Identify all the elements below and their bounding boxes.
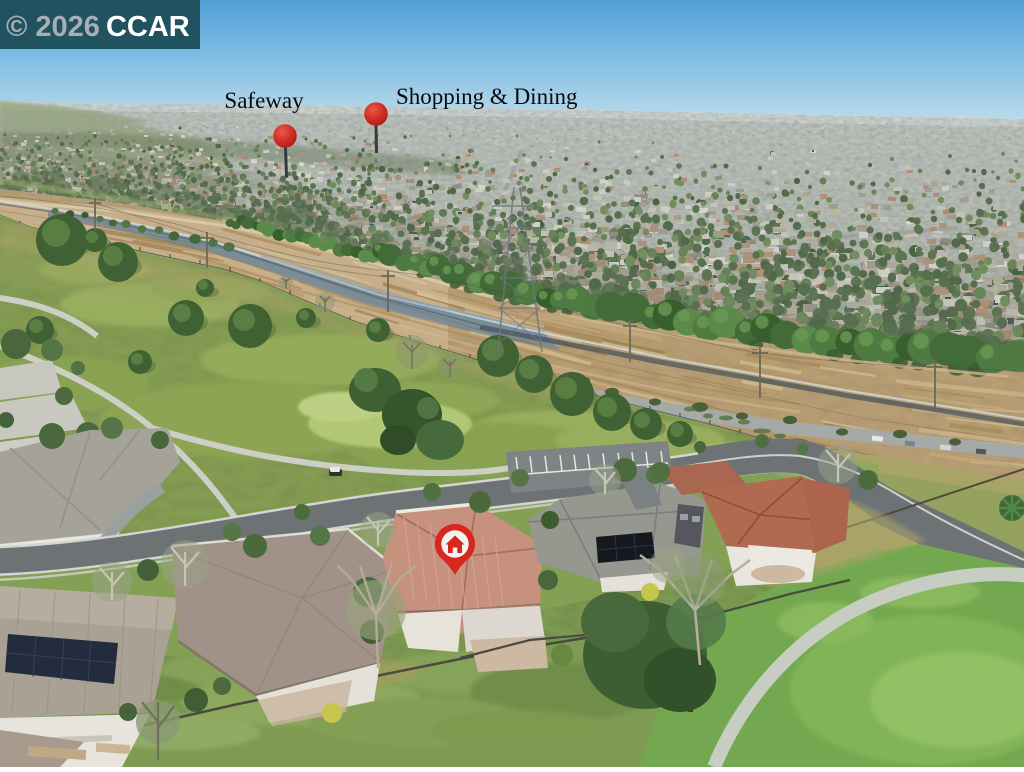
svg-text:Safeway: Safeway — [224, 88, 304, 113]
svg-text:Shopping & Dining: Shopping & Dining — [396, 84, 578, 109]
svg-text:© 2026CCAR: © 2026CCAR — [6, 11, 190, 43]
